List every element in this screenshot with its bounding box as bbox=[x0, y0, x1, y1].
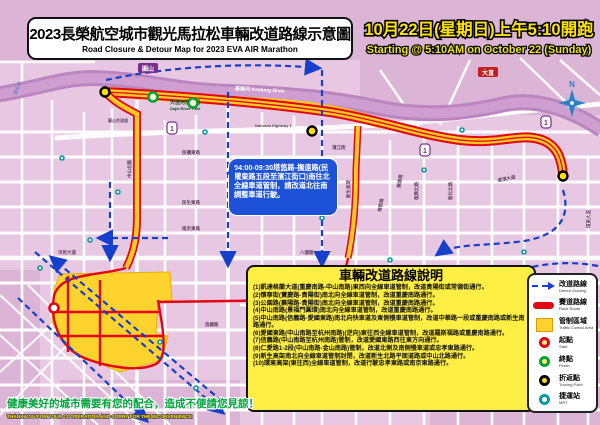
road-label: 環東大道 bbox=[585, 210, 592, 228]
detour-panel-title: 車輛改道路線說明 bbox=[253, 269, 529, 284]
mrt-station-icon-center bbox=[159, 341, 161, 343]
road-label: 濱江街 bbox=[332, 144, 346, 151]
road-label: 民生東路 bbox=[182, 199, 200, 206]
detour-item-1: (1)凱達格蘭大道(重慶南路-中山南路)東西向全線車道管制，改道貴陽街或常德街通… bbox=[253, 284, 529, 291]
zone-symbol-icon bbox=[532, 318, 556, 331]
highway-shield-number: 1 bbox=[170, 126, 174, 133]
detour-item-list: (1)凱達格蘭大道(重慶南路-中山南路)東西向全線車道管制，改道貴陽街或常德街通… bbox=[253, 284, 529, 367]
legend-label-zh: 管制區域 bbox=[559, 318, 593, 325]
detour-item-4: (4)中山南路(景福門圓環)南北向全線車道管制，改道重慶南路通行。 bbox=[253, 307, 529, 314]
highway-shield-number: 1 bbox=[544, 120, 548, 127]
legend-label-zh: 折返點 bbox=[559, 375, 583, 382]
legend-item-start: 起點Start bbox=[532, 334, 593, 351]
legend-label-zh: 改道路線 bbox=[559, 281, 587, 288]
detour-item-6: (6)愛國東路(中山南路至杭州南路)(逆向)東往西全線車道管制，改道羅斯福路或重… bbox=[253, 330, 529, 337]
mrt-station-icon-center bbox=[195, 387, 197, 389]
road-label: 信義路 bbox=[205, 321, 219, 328]
mrt-station-icon-center bbox=[39, 267, 41, 269]
compass-n-label: N bbox=[569, 80, 575, 89]
road-closure-map-poster: N 基隆河 Keelung River大佳河濱公園Dajia River Par… bbox=[0, 0, 600, 425]
legend-item-detour: 改道路線Detour Guiding bbox=[532, 278, 593, 295]
road-label: National Highway 1 bbox=[255, 123, 292, 128]
turning-point-marker bbox=[101, 88, 110, 97]
map-legend: 改道路線Detour Guiding賽道路線Race Route管制區域Traf… bbox=[527, 273, 598, 413]
detour-item-3: (3)公園路(襄陽路-貴陽街)南北向全線車道管制，改道重慶南路通行。 bbox=[253, 300, 529, 307]
legend-item-zone: 管制區域Traffic Control Area bbox=[532, 316, 593, 333]
road-label: 市民大道 bbox=[58, 249, 76, 256]
road-label: 新生高架 bbox=[345, 180, 352, 198]
detour-explanation-panel: 車輛改道路線說明 (1)凱達格蘭大道(重慶南路-中山南路)東西向全線車道管制，改… bbox=[246, 265, 536, 412]
notice-text: 04:00-09:30塔悠路-撫遠路(民權東路五段至濱江街口)南往北全線車道管制… bbox=[234, 163, 330, 199]
highway-shield-number: 1 bbox=[423, 148, 427, 155]
turning-point-marker bbox=[308, 127, 317, 136]
event-date-en: Starting @ 5:10AM on October 22 (Sunday) bbox=[367, 44, 592, 56]
road-control-notice-bubble: 04:00-09:30塔悠路-撫遠路(民權東路五段至濱江街口)南往北全線車道管制… bbox=[228, 158, 338, 216]
turning-point-marker bbox=[559, 172, 568, 181]
detour-item-5: (5)中山南路(信義路-愛國東路)南北向快車道及東側慢車道管制，改道中華路一段或… bbox=[253, 315, 529, 329]
road-label: 圓山交流道 bbox=[108, 117, 128, 123]
detour-symbol-icon bbox=[532, 280, 556, 293]
finish-symbol-icon bbox=[532, 355, 556, 368]
legend-label-zh: 起點 bbox=[559, 337, 573, 344]
legend-label-zh: 捷運站 bbox=[559, 393, 580, 400]
race-symbol-icon bbox=[532, 299, 556, 312]
courtesy-slogan: 健康美好的城市需要有您的配合，造成不便請您見諒！ THANK YOU FOR Y… bbox=[5, 395, 285, 423]
legend-item-finish: 終點Finish bbox=[532, 353, 593, 370]
detour-item-8: (8)仁愛路1-2段(中山南路-金山南路)管制，改道北側及南側慢車道或忠孝東路通… bbox=[253, 345, 529, 352]
legend-label-en: Traffic Control Area bbox=[559, 326, 593, 330]
legend-label-en: Turning Point bbox=[559, 383, 583, 387]
detour-item-10: (10)環東高架(東往西)全線車道管制，改道行駛忠孝東路或南京東路通行。 bbox=[253, 360, 529, 367]
event-date-banner: 10月22日(星期日)上午5:10開跑 Starting @ 5:10AM on… bbox=[358, 13, 600, 65]
start-symbol-icon bbox=[532, 336, 556, 349]
legend-label-en: MRT bbox=[559, 401, 580, 405]
mrt-symbol-icon bbox=[532, 393, 556, 406]
mrt-station-icon-center bbox=[423, 169, 425, 171]
detour-item-7: (7)信義路(中山南路至杭州南路)管制，改道愛國東路西往東方向通行。 bbox=[253, 337, 529, 344]
road-label: 復興北路 bbox=[413, 182, 420, 201]
legend-item-turn: 折返點Turning Point bbox=[532, 372, 593, 389]
map-title-zh: 2023長榮航空城市觀光馬拉松車輛改道路線示意圖 bbox=[29, 23, 350, 44]
map-title-en: Road Closure & Detour Map for 2023 EVA A… bbox=[82, 45, 298, 54]
detour-item-2: (2)懷寧街(寶慶路-貴陽街)南北向全線車道管制，改道重慶南路通行。 bbox=[253, 292, 529, 299]
road-label: 敦化北路 bbox=[447, 182, 454, 200]
legend-label-zh: 終點 bbox=[559, 356, 573, 363]
start-point-marker bbox=[50, 304, 59, 313]
legend-label-en: Start bbox=[559, 345, 573, 349]
station-box-label: 大直 bbox=[482, 69, 494, 77]
legend-label-en: Race Route bbox=[559, 307, 587, 311]
slogan-en: THANK YOU FOR YOUR COOPERATION AND SORRY… bbox=[7, 414, 193, 420]
legend-label-en: Detour Guiding bbox=[559, 289, 587, 293]
map-title-box: 2023長榮航空城市觀光馬拉松車輛改道路線示意圖 Road Closure & … bbox=[27, 17, 353, 60]
station-box-label: 圓山 bbox=[142, 65, 154, 73]
road-label: 八德路 bbox=[299, 249, 314, 256]
legend-item-mrt: 捷運站MRT bbox=[532, 391, 593, 408]
road-label: 南京東路 bbox=[182, 225, 200, 232]
road-label: 民權東路 bbox=[182, 149, 200, 156]
mrt-station-icon-center bbox=[89, 239, 91, 241]
mrt-station-icon-center bbox=[117, 191, 119, 193]
mrt-station-icon-center bbox=[461, 129, 463, 131]
legend-label-zh: 賽道路線 bbox=[559, 299, 587, 306]
detour-item-9: (9)新生高架南北向全線車道管制封閉，改道新生北路平面道路或中山北路通行。 bbox=[253, 353, 529, 360]
turn-symbol-icon bbox=[532, 374, 556, 387]
event-date-zh: 10月22日(星期日)上午5:10開跑 bbox=[364, 19, 594, 39]
mrt-station-icon-center bbox=[523, 251, 525, 253]
finish-point-marker bbox=[149, 93, 158, 102]
mrt-station-icon-center bbox=[321, 217, 323, 219]
road-label: 中山北路 bbox=[126, 160, 133, 178]
slogan-zh: 健康美好的城市需要有您的配合，造成不便請您見諒！ bbox=[7, 397, 259, 410]
mrt-station-icon-center bbox=[389, 259, 391, 261]
legend-item-race: 賽道路線Race Route bbox=[532, 297, 593, 314]
mrt-station-icon-center bbox=[204, 131, 206, 133]
legend-label-en: Finish bbox=[559, 364, 573, 368]
finish-point-marker bbox=[189, 99, 198, 108]
mrt-station-icon-center bbox=[61, 157, 63, 159]
